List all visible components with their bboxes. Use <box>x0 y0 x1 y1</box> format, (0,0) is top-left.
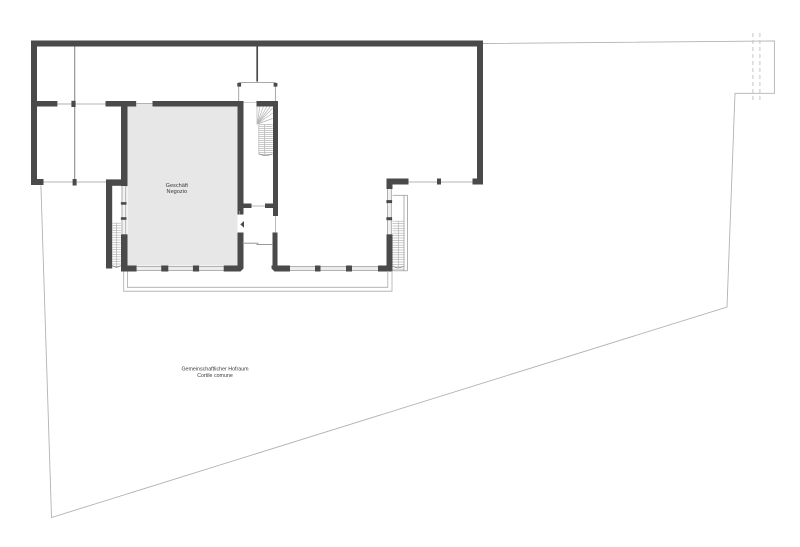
svg-text:Negozio: Negozio <box>167 189 188 195</box>
svg-text:Gemeinschaftlicher Hofraum: Gemeinschaftlicher Hofraum <box>181 366 249 372</box>
svg-text:Cortile comune: Cortile comune <box>197 373 233 379</box>
